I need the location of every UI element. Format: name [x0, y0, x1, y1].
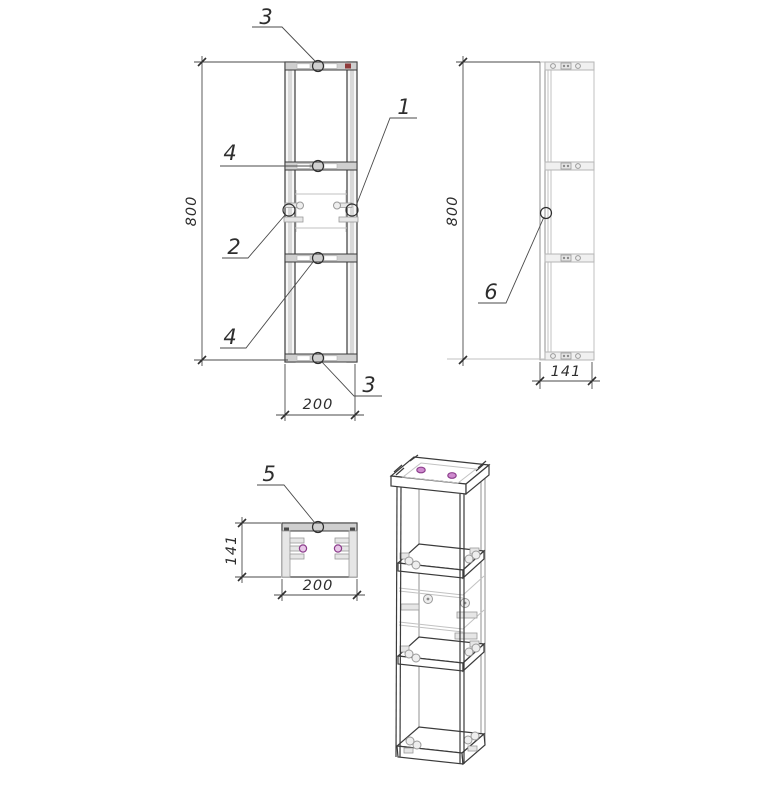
- callout-left-cam-number: 2: [227, 235, 240, 259]
- callout-bottom-rail-number: 3: [362, 373, 375, 397]
- screw-icon: [576, 256, 581, 261]
- dim-side-depth: 141: [532, 362, 600, 389]
- dim-plan-width: 200: [274, 578, 365, 601]
- drawing-canvas: 800 200 3 1 4 2 4: [0, 0, 782, 788]
- callout-left-cam: 2: [222, 215, 285, 259]
- screw-icon: [417, 467, 425, 473]
- callout-top-rail: 3: [252, 5, 315, 61]
- callout-plan-screw-number: 5: [262, 462, 275, 486]
- callout-side-cam: 6: [478, 217, 544, 304]
- technical-drawing-sheet: 800 200 3 1 4 2 4: [0, 0, 782, 788]
- screw-icon: [576, 354, 581, 359]
- cam-screw-icon: [334, 202, 341, 209]
- corner-mark: [350, 528, 355, 532]
- callout-top-rail-number: 3: [259, 5, 272, 29]
- side-bottom-rail: [545, 352, 594, 360]
- dim-side-height: 800: [445, 56, 545, 366]
- plan-view: 141 200 5: [224, 462, 365, 601]
- dim-side-depth-value: 141: [551, 364, 582, 380]
- side-shelf-lower: [545, 254, 594, 262]
- front-view: 800 200 3 1 4 2 4: [184, 5, 417, 421]
- screw-icon: [334, 545, 341, 552]
- cam-lock-icon: [561, 63, 571, 69]
- dim-front-width-value: 200: [303, 397, 334, 413]
- front-shelf-lower: [285, 253, 357, 264]
- callout-side-cam-number: 6: [484, 280, 497, 304]
- callout-target-left-cam: [283, 204, 295, 216]
- screw-icon: [576, 164, 581, 169]
- dim-plan-width-value: 200: [303, 578, 334, 594]
- callout-bottom-rail: 3: [321, 361, 382, 397]
- cam-lock-icon: [561, 255, 571, 261]
- corner-mark: [284, 528, 289, 532]
- iso-shelf-upper: [398, 544, 484, 578]
- callout-plan-screw: 5: [257, 462, 315, 523]
- screw-icon: [299, 545, 306, 552]
- screw-icon: [551, 64, 556, 69]
- callout-shelf-lower: 4: [220, 262, 313, 349]
- cam-screw-icon: [297, 202, 304, 209]
- callout-shelf-lower-number: 4: [223, 325, 236, 349]
- side-top-rail: [545, 62, 594, 70]
- iso-top-panel: [391, 455, 489, 494]
- screw-icon: [448, 473, 456, 479]
- front-bottom-rail: [285, 353, 357, 364]
- side-view: 800 141 6: [445, 56, 600, 389]
- dim-front-height-value: 800: [184, 196, 200, 227]
- iso-view: [391, 455, 489, 764]
- callout-shelf-upper-number: 4: [223, 141, 236, 165]
- dim-side-height-value: 800: [445, 196, 461, 227]
- iso-back-panel: [399, 576, 484, 639]
- side-shelf-upper: [545, 162, 594, 170]
- screw-icon: [576, 64, 581, 69]
- callout-target-shelf-lower: [313, 253, 324, 264]
- red-mark: [345, 64, 351, 69]
- callout-right-cam: 1: [356, 95, 417, 206]
- iso-shelf-lower: [398, 637, 484, 671]
- callout-target-top: [313, 61, 324, 72]
- callout-target-shelf-upper: [313, 161, 324, 172]
- callout-target-side-cam: [541, 208, 552, 219]
- cam-lock-icon: [561, 353, 571, 359]
- iso-bottom-panel: [397, 727, 485, 764]
- dim-plan-depth: 141: [224, 517, 281, 583]
- callout-target-plan-screw: [313, 522, 324, 533]
- dim-plan-depth-value: 141: [224, 535, 240, 566]
- callout-right-cam-number: 1: [397, 95, 410, 119]
- cam-lock-icon: [561, 163, 571, 169]
- screw-icon: [551, 354, 556, 359]
